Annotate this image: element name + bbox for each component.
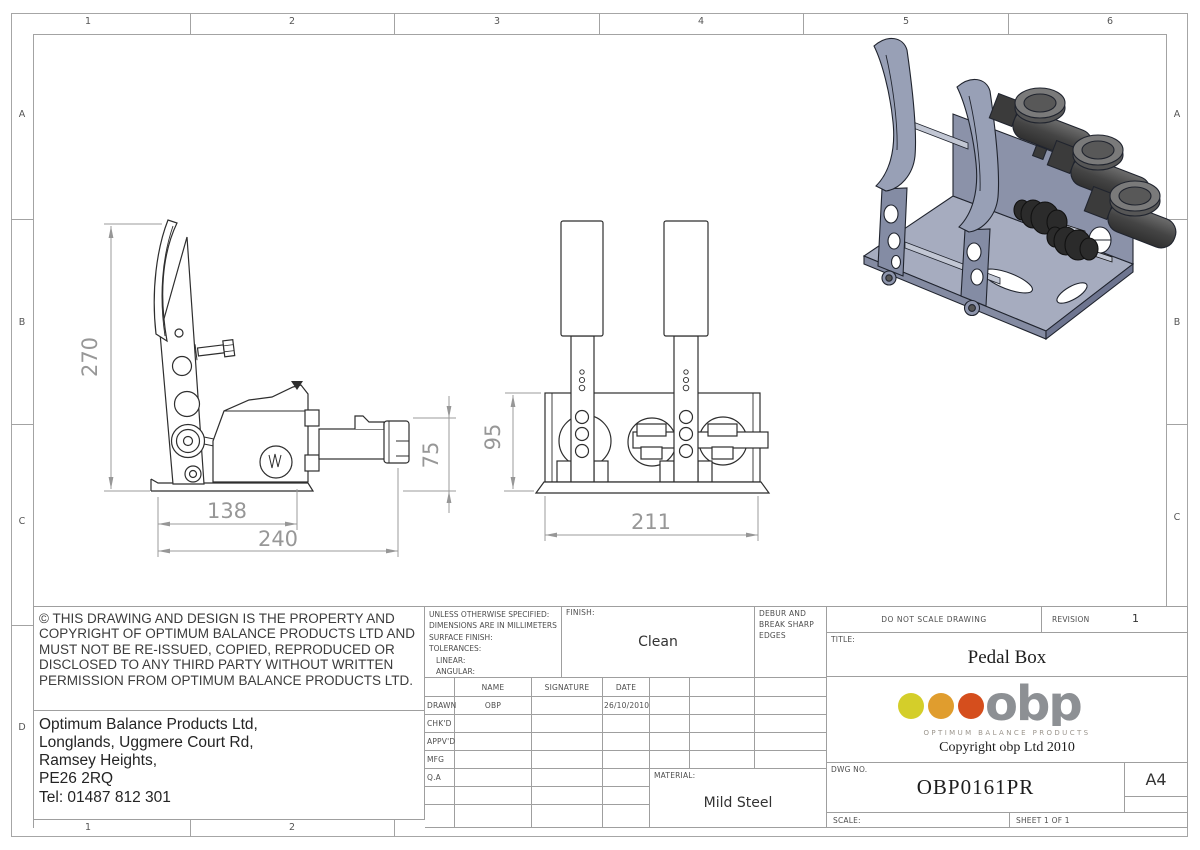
paper-size-cell: A4: [1125, 763, 1188, 797]
approval-row-label: DRAWN: [425, 697, 455, 715]
left-tick: [11, 424, 33, 425]
top-tick: [803, 13, 804, 34]
obp-logo: obp: [897, 682, 1117, 726]
approval-row-date: [603, 733, 650, 751]
approval-row-name: OBP: [455, 697, 532, 715]
approval-row-extra: [690, 715, 755, 733]
left-tick: [11, 625, 33, 626]
logo-word: obp: [985, 682, 1081, 726]
top-tick: [394, 13, 395, 34]
grid-col-label: 6: [1099, 16, 1121, 30]
company-address: Optimum Balance Products Ltd, Longlands,…: [33, 711, 424, 807]
approval-row-label: APPV'D: [425, 733, 455, 751]
approval-empty: [532, 805, 603, 828]
approval-row-name: [455, 715, 532, 733]
approval-header-date: DATE: [603, 678, 650, 697]
approval-header-extra: [690, 678, 755, 697]
dim-138: 138: [207, 499, 247, 523]
top-tick: [190, 13, 191, 34]
dwg-no-label: DWG NO.: [831, 765, 867, 774]
address-line: PE26 2RQ: [39, 770, 420, 788]
approval-header-name: NAME: [455, 678, 532, 697]
paper-size-sub-cell: [1125, 797, 1188, 813]
spec-line: DIMENSIONS ARE IN MILLIMETERS: [429, 620, 561, 631]
approval-row-name: [455, 769, 532, 787]
approval-row-date: [603, 769, 650, 787]
grid-row-label: B: [11, 317, 33, 331]
revision-value: 1: [1132, 612, 1139, 625]
company-address-cell: Optimum Balance Products Ltd, Longlands,…: [33, 711, 425, 820]
dwg-no-value: OBP0161PR: [917, 775, 1035, 800]
approval-empty: [455, 787, 532, 805]
drawing-views: 270 138 240 75: [33, 34, 1190, 606]
approval-row-extra: [755, 697, 827, 715]
address-line: Optimum Balance Products Ltd,: [39, 716, 420, 734]
spec-line: SURFACE FINISH:: [429, 632, 561, 643]
approval-row-extra: [690, 751, 755, 769]
approval-row-name: [455, 733, 532, 751]
left-tick: [11, 219, 33, 220]
address-line: Tel: 01487 812 301: [39, 789, 420, 807]
approval-row-signature: [532, 751, 603, 769]
logo-tagline: OPTIMUM BALANCE PRODUCTS: [827, 729, 1187, 737]
approval-row-label: Q.A: [425, 769, 455, 787]
finish-value: Clean: [638, 634, 678, 650]
approval-row-extra: [650, 697, 690, 715]
spec-line: TOLERANCES:: [429, 643, 561, 654]
approval-row-extra: [755, 733, 827, 751]
material-value: Mild Steel: [704, 795, 773, 811]
revision-label: REVISION: [1052, 615, 1089, 624]
approval-empty: [425, 787, 455, 805]
grid-col-label: 4: [690, 16, 712, 30]
approval-header-extra: [755, 678, 827, 697]
spec-line: LINEAR:: [429, 655, 561, 666]
do-not-scale-cell: DO NOT SCALE DRAWING: [827, 606, 1042, 633]
spec-line: UNLESS OTHERWISE SPECIFIED:: [429, 609, 561, 620]
approval-empty: [603, 787, 650, 805]
finish-cell: FINISH: Clean: [562, 606, 755, 678]
sheet-label: SHEET 1 OF 1: [1016, 816, 1070, 825]
debur-cell: DEBUR AND BREAK SHARP EDGES: [755, 606, 827, 678]
sheet-cell: SHEET 1 OF 1: [1010, 813, 1188, 828]
paper-size: A4: [1145, 770, 1166, 789]
approval-row-extra: [755, 715, 827, 733]
approval-empty: [603, 805, 650, 828]
grid-col-label: 1: [77, 16, 99, 30]
approval-empty: [425, 805, 455, 828]
approval-empty: [532, 787, 603, 805]
approval-row-extra: [650, 751, 690, 769]
approval-row-signature: [532, 715, 603, 733]
finish-label: FINISH:: [566, 608, 595, 617]
approval-row-label: CHK'D: [425, 715, 455, 733]
grid-row-label: A: [11, 109, 33, 123]
dwg-no-cell: DWG NO. OBP0161PR: [827, 763, 1125, 813]
dim-270: 270: [78, 337, 102, 377]
top-tick: [599, 13, 600, 34]
approval-header-signature: SIGNATURE: [532, 678, 603, 697]
approval-row-signature: [532, 697, 603, 715]
grid-row-label: D: [11, 722, 33, 736]
logo-copyright: Copyright obp Ltd 2010: [827, 740, 1187, 756]
dim-240: 240: [258, 527, 298, 551]
grid-col-label: 3: [486, 16, 508, 30]
dim-211: 211: [631, 510, 671, 534]
approval-row-date: [603, 715, 650, 733]
grid-col-label: 5: [895, 16, 917, 30]
approval-row-extra: [690, 733, 755, 751]
approval-row-extra: [650, 733, 690, 751]
material-cell: MATERIAL: Mild Steel: [650, 769, 827, 828]
drawing-title: Pedal Box: [968, 647, 1047, 669]
grid-row-label: C: [11, 516, 33, 530]
logo-dot-yellow: [898, 693, 924, 719]
approval-row-date: [603, 751, 650, 769]
approval-row-extra: [650, 715, 690, 733]
approval-row-signature: [532, 769, 603, 787]
front-view: [536, 221, 769, 493]
approval-row-extra: [690, 697, 755, 715]
revision-cell: REVISION 1: [1042, 606, 1188, 633]
isometric-view: [864, 38, 1181, 339]
drawing-sheet: 1 2 3 4 5 6 1 2 A B C D A B C: [0, 0, 1200, 850]
logo-dot-red: [958, 693, 984, 719]
approval-corner-cell: [425, 678, 455, 697]
approval-empty: [455, 805, 532, 828]
approval-row-date: 26/10/2010: [603, 697, 650, 715]
top-tick: [1008, 13, 1009, 34]
material-label: MATERIAL:: [654, 771, 695, 780]
copyright-notice: © THIS DRAWING AND DESIGN IS THE PROPERT…: [33, 606, 424, 688]
approval-row-label: MFG: [425, 751, 455, 769]
side-view: [151, 220, 409, 491]
scale-cell: SCALE:: [827, 813, 1010, 828]
scale-label: SCALE:: [833, 816, 861, 825]
address-line: Longlands, Uggmere Court Rd,: [39, 734, 420, 752]
title-label: TITLE:: [831, 635, 855, 644]
approval-header-extra: [650, 678, 690, 697]
debur-note: DEBUR AND BREAK SHARP EDGES: [759, 609, 823, 642]
approval-row-signature: [532, 733, 603, 751]
spec-line: ANGULAR:: [429, 666, 561, 677]
logo-dot-orange: [928, 693, 954, 719]
logo-cell: obp OPTIMUM BALANCE PRODUCTS Copyright o…: [827, 677, 1188, 763]
grid-col-label: 2: [281, 16, 303, 30]
address-line: Ramsey Heights,: [39, 752, 420, 770]
approval-row-extra: [755, 751, 827, 769]
tolerance-spec-cell: UNLESS OTHERWISE SPECIFIED: DIMENSIONS A…: [425, 606, 562, 678]
title-cell: TITLE: Pedal Box: [827, 633, 1188, 677]
dim-95: 95: [481, 424, 505, 451]
dim-75: 75: [419, 442, 443, 469]
copyright-notice-cell: © THIS DRAWING AND DESIGN IS THE PROPERT…: [33, 606, 425, 711]
approval-row-name: [455, 751, 532, 769]
